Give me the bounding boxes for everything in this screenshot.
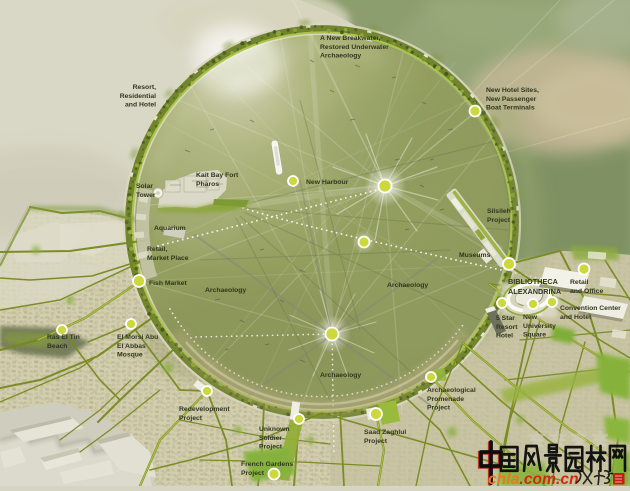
- svg-text:Mosque: Mosque: [117, 352, 143, 359]
- svg-text:Square: Square: [523, 332, 546, 339]
- svg-text:New: New: [523, 314, 538, 321]
- svg-text:Project: Project: [259, 444, 283, 451]
- svg-text:El Abbas: El Abbas: [117, 343, 146, 350]
- svg-text:Solar: Solar: [136, 183, 153, 190]
- svg-text:Restored Underwater: Restored Underwater: [320, 44, 389, 51]
- svg-text:Silsileh: Silsileh: [487, 208, 511, 215]
- svg-text:Project: Project: [241, 470, 265, 477]
- svg-text:Retail: Retail: [570, 279, 589, 286]
- svg-text:French Gardens: French Gardens: [241, 461, 293, 468]
- svg-text:ALEXANDRINA: ALEXANDRINA: [508, 287, 562, 296]
- svg-text:Project: Project: [487, 217, 511, 224]
- svg-text:and Office: and Office: [570, 288, 603, 295]
- svg-text:Soldier: Soldier: [259, 435, 282, 442]
- svg-text:BIBLIOTHECA: BIBLIOTHECA: [508, 277, 559, 286]
- svg-text:Tower: Tower: [136, 192, 156, 199]
- svg-text:Project: Project: [179, 415, 203, 422]
- svg-text:Project: Project: [364, 438, 388, 445]
- svg-text:Beach: Beach: [47, 343, 67, 350]
- svg-text:El Morsi Abu: El Morsi Abu: [117, 334, 158, 341]
- svg-text:Promenade: Promenade: [427, 396, 464, 403]
- svg-text:Fish Market: Fish Market: [149, 280, 188, 287]
- svg-text:chla.com.cn: chla.com.cn: [488, 471, 579, 486]
- svg-text:Museums: Museums: [459, 252, 491, 259]
- svg-text:Market Place: Market Place: [147, 255, 189, 262]
- svg-text:and Hotel: and Hotel: [560, 314, 591, 321]
- svg-text:Archaeology: Archaeology: [320, 372, 361, 379]
- svg-text:Archaeology: Archaeology: [387, 282, 428, 289]
- svg-text:Saad Zaghlul: Saad Zaghlul: [364, 429, 406, 436]
- svg-text:Ras El Tin: Ras El Tin: [47, 334, 80, 341]
- svg-text:Boat Terminals: Boat Terminals: [486, 105, 535, 112]
- svg-text:5 Star: 5 Star: [496, 315, 515, 322]
- svg-text:New Harbour: New Harbour: [306, 179, 349, 186]
- svg-text:Convention Center: Convention Center: [560, 305, 621, 312]
- svg-text:Archaeology: Archaeology: [205, 287, 246, 294]
- svg-text:University: University: [523, 323, 556, 330]
- svg-text:Unknown: Unknown: [259, 426, 290, 433]
- svg-text:Project: Project: [427, 405, 451, 412]
- svg-text:Archaeological: Archaeological: [427, 387, 476, 394]
- svg-text:A New Breakwater,: A New Breakwater,: [320, 35, 381, 42]
- svg-text:New Hotel Sites,: New Hotel Sites,: [486, 87, 539, 94]
- svg-text:Archaeology: Archaeology: [320, 53, 361, 60]
- svg-text:and Hotel: and Hotel: [125, 102, 156, 109]
- svg-text:Residential: Residential: [120, 93, 156, 100]
- svg-text:Retail,: Retail,: [147, 246, 168, 253]
- svg-text:Kait Bay Fort: Kait Bay Fort: [196, 172, 239, 179]
- svg-text:Pharos: Pharos: [196, 181, 219, 188]
- svg-text:Redevelopment: Redevelopment: [179, 406, 230, 413]
- svg-text:Hotel: Hotel: [496, 333, 513, 340]
- svg-text:Resort,: Resort,: [133, 84, 157, 91]
- svg-text:Resort: Resort: [496, 324, 518, 331]
- svg-text:New Passenger: New Passenger: [486, 96, 537, 103]
- svg-text:Aquarium: Aquarium: [154, 225, 186, 232]
